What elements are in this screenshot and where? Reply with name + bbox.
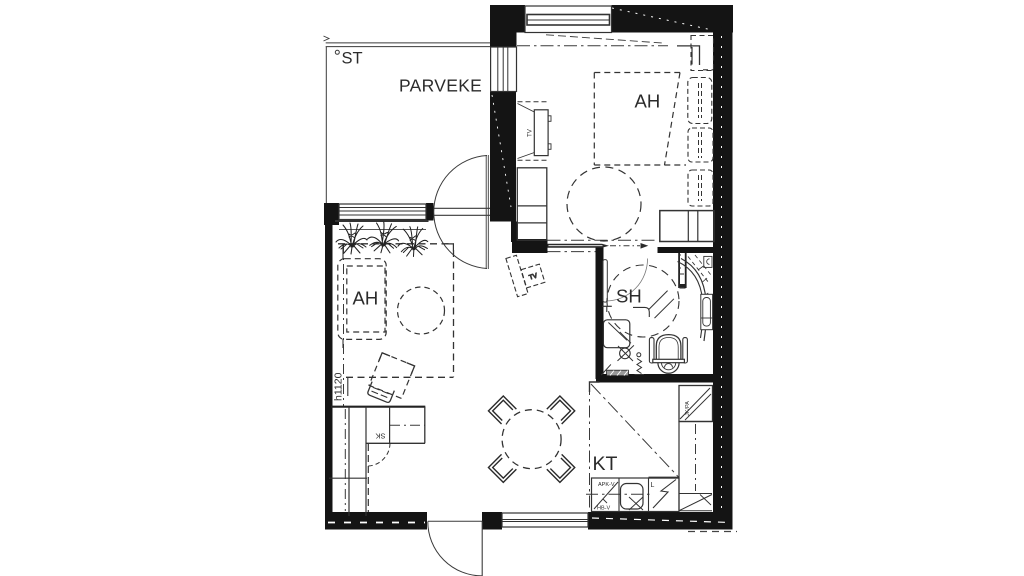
svg-text:SK: SK <box>375 432 385 441</box>
svg-text:APK-V: APK-V <box>598 482 615 488</box>
svg-text:ST: ST <box>342 50 363 68</box>
svg-text:AH: AH <box>635 91 661 112</box>
svg-text:AH: AH <box>353 288 379 309</box>
svg-text:SH: SH <box>616 286 642 307</box>
svg-text:PARVEKE: PARVEKE <box>399 76 482 96</box>
svg-text:h1120: h1120 <box>333 372 345 401</box>
svg-text:TV: TV <box>527 128 534 137</box>
svg-text:L: L <box>651 482 655 489</box>
svg-text:JK/PA: JK/PA <box>685 401 691 416</box>
svg-text:KT: KT <box>593 453 618 475</box>
svg-text:HB-V: HB-V <box>597 506 610 512</box>
